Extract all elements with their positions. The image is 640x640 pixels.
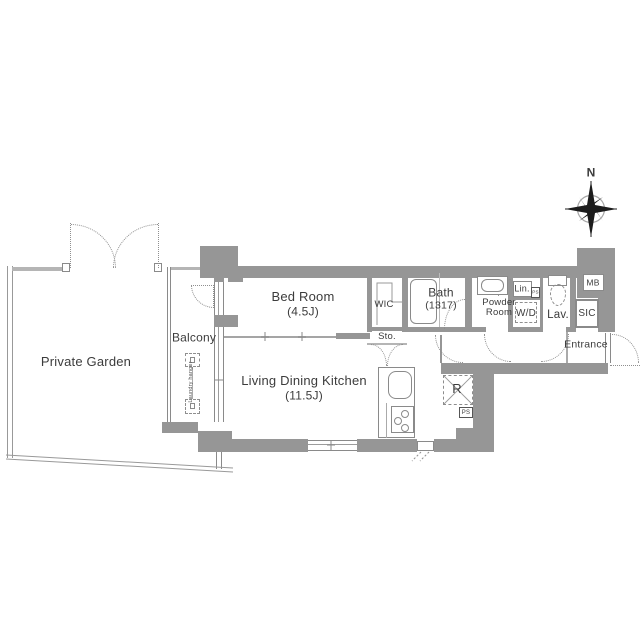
label-bed-room: Bed Room [271,290,334,304]
garden-slope-line-inner [6,459,233,472]
label-powder-room-line2: Room [486,308,512,318]
label-wd: W/D [516,309,536,320]
label-mb: MB [586,279,599,288]
label-balcony: Balcony [172,332,216,345]
label-bed-room-size: (4.5J) [287,306,319,319]
label-refrigerator: R [452,382,462,396]
label-sic: SIC [578,309,595,320]
label-ps-upper: PS [532,290,538,295]
garden-slope-line-outer [6,455,233,468]
floor-plan: N Private Garden Balcony Bed Room (4.5J)… [0,0,640,640]
line-overlay [0,0,640,640]
label-ldk: Living Dining Kitchen [241,374,367,388]
compass-rose [565,181,617,237]
label-lin: Lin. [514,284,529,293]
label-ps-lower: PS [462,409,470,415]
vent-dash-2 [420,452,429,461]
label-bath-size: (1317) [425,300,457,311]
label-lav: Lav. [547,309,569,321]
label-compass-north: N [587,167,596,180]
label-wic: WIC [374,300,393,310]
label-ldk-size: (11.5J) [285,390,323,403]
label-private-garden: Private Garden [41,355,131,369]
vent-dash-1 [412,452,421,461]
label-sto: Sto. [378,332,396,342]
label-bath: Bath [428,287,454,300]
label-entrance: Entrance [564,339,608,350]
label-laundry-hanger: Laundry hanger [189,361,195,402]
